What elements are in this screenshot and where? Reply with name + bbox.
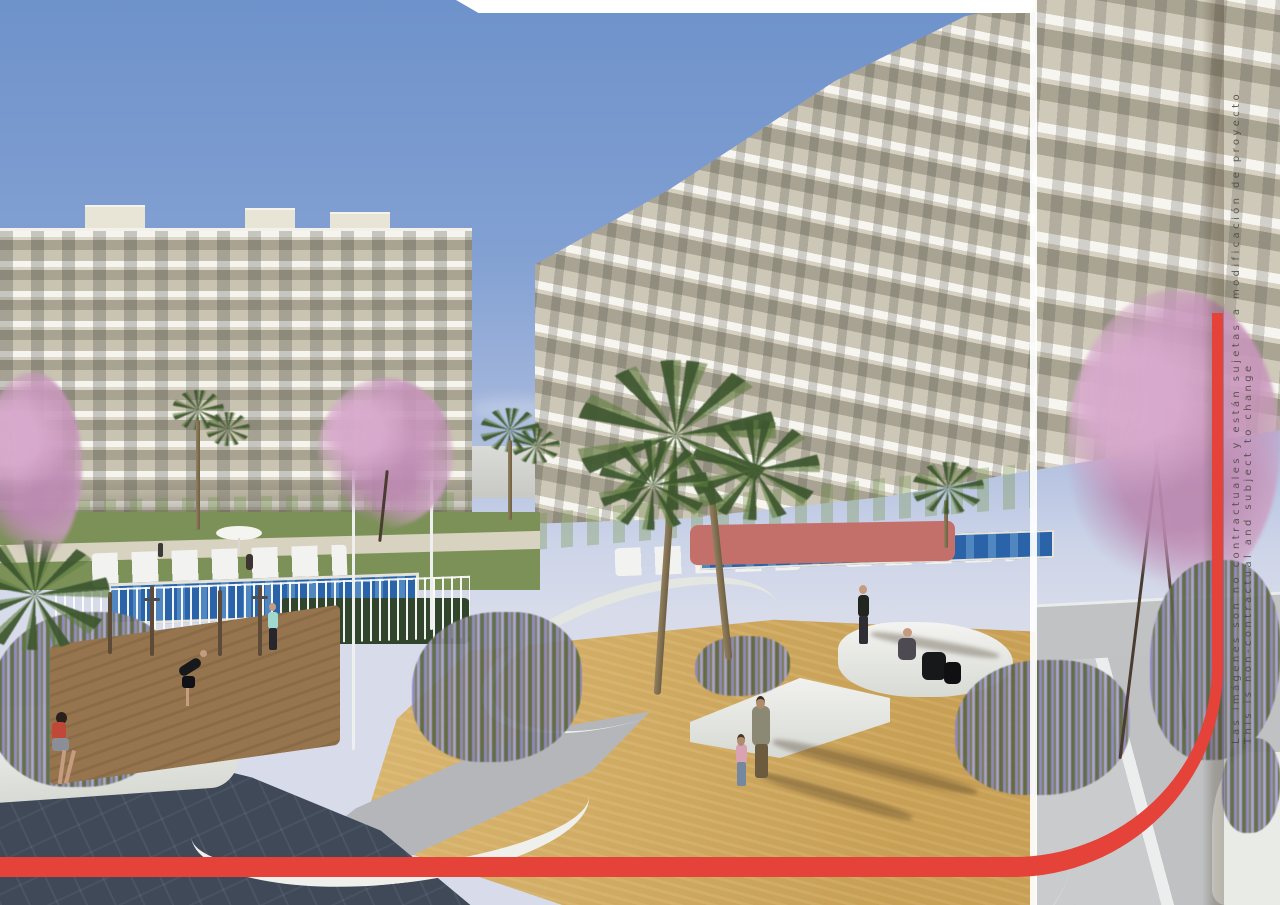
red-frame-line <box>0 313 1223 877</box>
top-white-strip <box>456 0 1032 13</box>
render-photo: Las imágenes son no contractuales y está… <box>0 0 1280 905</box>
disclaimer-line-en: This is non-contractual and subject to c… <box>1243 26 1255 744</box>
disclaimer-line-es: Las imágenes son no contractuales y está… <box>1231 26 1243 744</box>
disclaimer-vertical: Las imágenes son no contractuales y está… <box>1231 26 1254 744</box>
brochure-page: Las imágenes son no contractuales y está… <box>0 0 1280 905</box>
